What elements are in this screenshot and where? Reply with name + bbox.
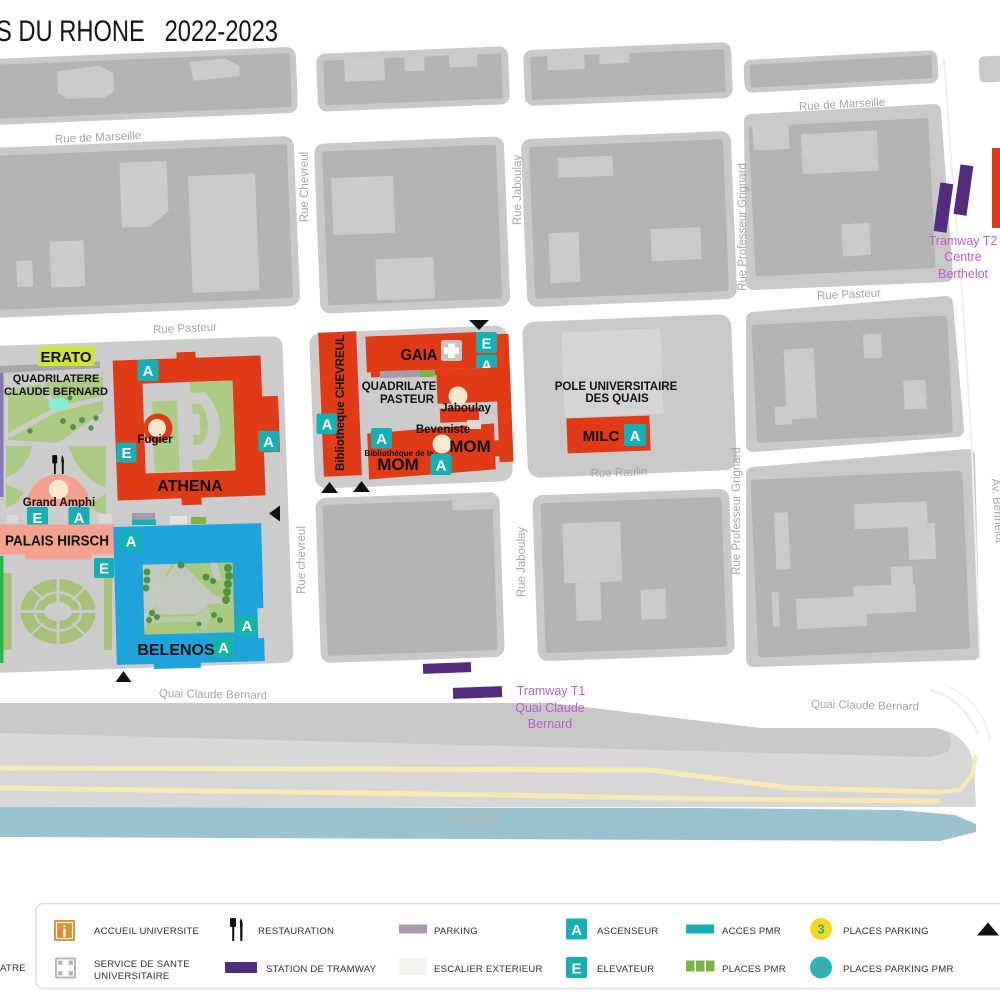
svg-text:Bibliothèque CHEVREUL: Bibliothèque CHEVREUL bbox=[335, 335, 347, 471]
svg-text:Quai Claude: Quai Claude bbox=[515, 701, 585, 715]
svg-text:UNIVERSITAIRE: UNIVERSITAIRE bbox=[94, 971, 169, 982]
svg-text:ERATO: ERATO bbox=[40, 349, 91, 366]
svg-text:E: E bbox=[481, 336, 491, 353]
svg-text:PASTEUR: PASTEUR bbox=[380, 394, 435, 406]
svg-text:Jaboulay: Jaboulay bbox=[441, 403, 491, 415]
svg-text:PALAIS HIRSCH: PALAIS HIRSCH bbox=[5, 534, 109, 550]
svg-text:E: E bbox=[571, 961, 581, 978]
svg-text:Rue Chevreul: Rue Chevreul bbox=[299, 152, 311, 222]
svg-text:Bernard: Bernard bbox=[528, 717, 573, 731]
svg-text:ATRE: ATRE bbox=[0, 963, 26, 974]
svg-text:Le Rhône: Le Rhône bbox=[448, 810, 500, 824]
svg-text:A: A bbox=[218, 640, 229, 657]
svg-text:Rue Professeur Grignard: Rue Professeur Grignard bbox=[737, 163, 749, 291]
svg-text:A: A bbox=[143, 363, 154, 380]
svg-text:Tramway T1: Tramway T1 bbox=[517, 684, 586, 698]
svg-text:PLACES PMR: PLACES PMR bbox=[722, 964, 786, 975]
svg-text:Centre: Centre bbox=[944, 250, 982, 264]
svg-text:3: 3 bbox=[817, 960, 824, 975]
svg-text:3: 3 bbox=[817, 922, 824, 937]
svg-text:POLE UNIVERSITAIRE: POLE UNIVERSITAIRE bbox=[555, 381, 678, 393]
svg-text:Beveniste: Beveniste bbox=[416, 424, 470, 436]
svg-text:Rue Pasteur: Rue Pasteur bbox=[817, 288, 882, 303]
svg-text:ASCENSEUR: ASCENSEUR bbox=[597, 926, 659, 937]
svg-text:PLACES PARKING: PLACES PARKING bbox=[843, 926, 929, 937]
svg-text:ACCES PMR: ACCES PMR bbox=[722, 926, 781, 937]
svg-text:RESTAURATION: RESTAURATION bbox=[258, 926, 334, 937]
svg-text:Rue Pasteur: Rue Pasteur bbox=[153, 322, 218, 337]
svg-text:Fugier: Fugier bbox=[137, 434, 173, 446]
svg-text:BELENOS: BELENOS bbox=[137, 642, 215, 659]
svg-text:GAIA: GAIA bbox=[401, 347, 438, 364]
svg-text:A: A bbox=[571, 922, 582, 939]
svg-text:Rue chevreul: Rue chevreul bbox=[296, 526, 308, 594]
svg-text:A: A bbox=[242, 618, 253, 635]
svg-text:A: A bbox=[436, 458, 447, 475]
svg-text:E: E bbox=[121, 445, 131, 462]
svg-text:SERVICE DE SANTE: SERVICE DE SANTE bbox=[94, 959, 190, 970]
svg-text:A: A bbox=[376, 431, 387, 448]
svg-text:E: E bbox=[99, 561, 109, 578]
svg-text:i: i bbox=[62, 924, 66, 941]
svg-text:Rue Professeur Grignard: Rue Professeur Grignard bbox=[731, 447, 743, 575]
svg-text:PLACES PARKING PMR: PLACES PARKING PMR bbox=[843, 964, 954, 975]
svg-text:E: E bbox=[32, 510, 42, 527]
svg-text:Tramway T2: Tramway T2 bbox=[929, 234, 998, 248]
svg-text:CLAUDE BERNARD: CLAUDE BERNARD bbox=[4, 386, 108, 398]
svg-text:ESCALIER EXTERIEUR: ESCALIER EXTERIEUR bbox=[434, 964, 543, 975]
svg-text:PARKING: PARKING bbox=[434, 926, 478, 937]
svg-text:Rue Jaboulay: Rue Jaboulay bbox=[512, 155, 524, 226]
svg-text:A: A bbox=[126, 534, 137, 551]
svg-text:ELEVATEUR: ELEVATEUR bbox=[597, 964, 654, 975]
svg-text:DES QUAIS: DES QUAIS bbox=[585, 393, 649, 405]
svg-text:A: A bbox=[74, 510, 85, 527]
svg-text:Av. Berthelot: Av. Berthelot bbox=[989, 478, 1000, 544]
svg-text:A: A bbox=[630, 428, 641, 445]
svg-text:Berthelot: Berthelot bbox=[938, 267, 989, 281]
svg-text:MILC: MILC bbox=[583, 428, 620, 445]
svg-text:STATION DE TRAMWAY: STATION DE TRAMWAY bbox=[266, 964, 377, 975]
svg-text:S DU RHONE 2022-2023: S DU RHONE 2022-2023 bbox=[0, 15, 278, 48]
svg-text:MOM: MOM bbox=[449, 437, 491, 456]
svg-text:Rue Raulin: Rue Raulin bbox=[590, 466, 647, 480]
svg-text:ACCUEIL UNIVERSITE: ACCUEIL UNIVERSITE bbox=[94, 926, 199, 937]
svg-text:MOM: MOM bbox=[377, 455, 419, 474]
svg-text:QUADRILATERE: QUADRILATERE bbox=[13, 373, 100, 385]
svg-text:A: A bbox=[263, 434, 274, 451]
svg-text:A: A bbox=[322, 417, 333, 434]
svg-text:Quai Claude Bernard: Quai Claude Bernard bbox=[811, 699, 919, 714]
svg-text:Quai Claude Bernard: Quai Claude Bernard bbox=[159, 688, 267, 702]
svg-text:Rue Jaboulay: Rue Jaboulay bbox=[516, 527, 528, 598]
svg-text:ATHENA: ATHENA bbox=[157, 478, 223, 495]
